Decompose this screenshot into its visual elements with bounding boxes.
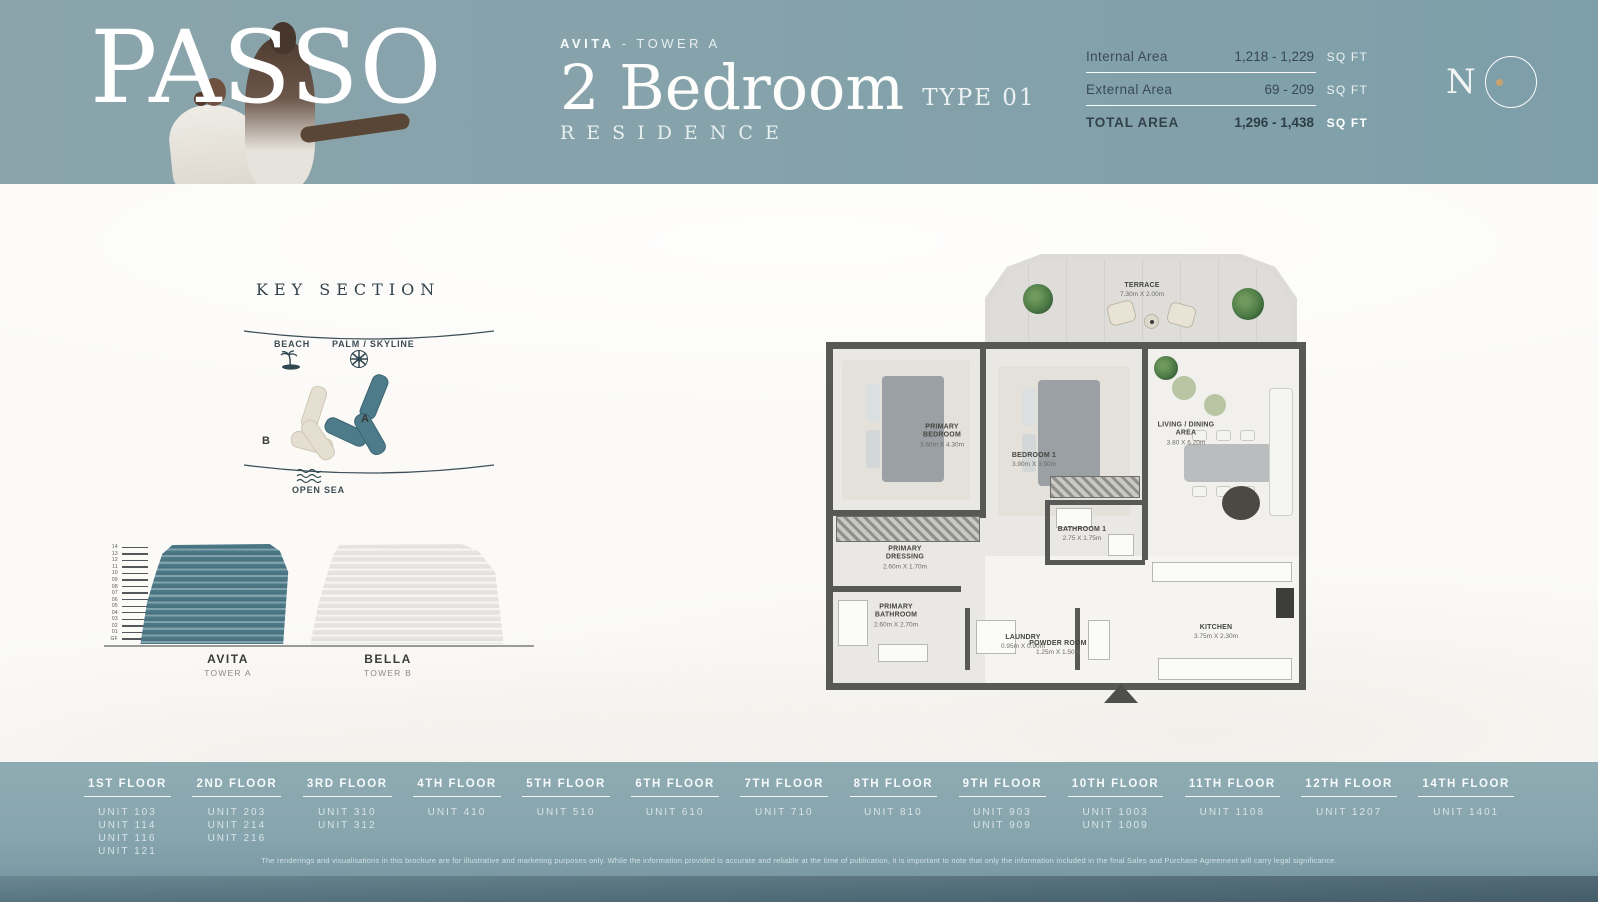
floor-column-14th: 14TH FLOOR UNIT 1401 <box>1418 774 1514 858</box>
external-area-label: External Area <box>1086 82 1214 97</box>
floor-scale-number: 06 <box>104 597 118 603</box>
floor-plan: TERRACE 7.30m X 2.00m <box>820 248 1312 708</box>
unit-item: UNIT 410 <box>413 806 501 819</box>
room-dims: 7.30m X 2.00m <box>1106 291 1178 298</box>
dining-table <box>1184 444 1272 482</box>
kitchen-counter <box>1158 658 1292 680</box>
floor-scale-number: 11 <box>104 564 118 570</box>
floor-scale-number: GF <box>104 636 118 642</box>
room-dims: 1.25m X 1.50m <box>1022 649 1094 656</box>
floor-scale-number: 02 <box>104 623 118 629</box>
floor-scale-tick <box>122 566 148 567</box>
total-area-value: 1,296 - 1,438 <box>1214 115 1316 130</box>
floor-scale-number: 03 <box>104 616 118 622</box>
floor-scale-number: 10 <box>104 570 118 576</box>
floor-scale-tick <box>122 606 148 607</box>
room-name: BEDROOM 1 <box>998 452 1070 460</box>
room-name: POWDER ROOM <box>1022 640 1094 648</box>
floor-scale-number: 05 <box>104 603 118 609</box>
unit-item: UNIT 610 <box>631 806 719 819</box>
tower-b-key-label: B <box>262 435 270 447</box>
floor-scale-number: 07 <box>104 590 118 596</box>
unit-item: UNIT 203 <box>192 806 281 819</box>
tower-a-key-label: A <box>361 413 369 425</box>
unit-item: UNIT 1207 <box>1301 806 1397 819</box>
floor-column-header: 7TH FLOOR <box>740 778 828 797</box>
residence-label: RESIDENCE <box>560 122 1036 144</box>
floor-scale-number: 12 <box>104 557 118 563</box>
project-name: AVITA - TOWER A <box>560 36 1036 51</box>
floor-scale-tick <box>122 579 148 580</box>
developer-logo: N <box>1446 56 1537 108</box>
floor-column-header: 12TH FLOOR <box>1301 778 1397 797</box>
room-name: LIVING / DINING AREA <box>1150 422 1222 439</box>
unit-item: UNIT 310 <box>303 806 392 819</box>
terrace-label: TERRACE 7.30m X 2.00m <box>1106 282 1178 298</box>
floor-column-4th: 4TH FLOOR UNIT 410 <box>413 774 501 858</box>
wall <box>980 342 986 518</box>
unit-item: UNIT 1401 <box>1418 806 1514 819</box>
floor-column-2nd: 2ND FLOOR UNIT 203 UNIT 214 UNIT 216 <box>192 774 281 858</box>
floor-column-header: 5TH FLOOR <box>522 778 610 797</box>
unit-item: UNIT 114 <box>84 819 171 832</box>
terrace-plant-icon <box>1232 288 1264 320</box>
internal-area-label: Internal Area <box>1086 49 1214 64</box>
passo-logo: PASSO <box>90 18 443 118</box>
developer-logo-gold-dot <box>1496 79 1503 86</box>
living-plant-icon <box>1154 356 1178 380</box>
key-section-title: KEY SECTION <box>256 280 440 299</box>
floor-column-12th: 12TH FLOOR UNIT 1207 <box>1301 774 1397 858</box>
floor-column-3rd: 3RD FLOOR UNIT 310 UNIT 312 <box>303 774 392 858</box>
internal-area-value: 1,218 - 1,229 <box>1214 49 1316 64</box>
floor-column-10th: 10TH FLOOR UNIT 1003 UNIT 1009 <box>1068 774 1164 858</box>
living-dining-label: LIVING / DINING AREA 3.80 X 6.20m <box>1150 422 1222 447</box>
floor-column-header: 9TH FLOOR <box>959 778 1047 797</box>
internal-area-unit: SQ FT <box>1316 50 1368 64</box>
floor-column-header: 11TH FLOOR <box>1185 778 1280 797</box>
room-dims: 2.60m X 1.70m <box>869 563 941 570</box>
bathroom1-label: BATHROOM 1 2.75 X 1.75m <box>1046 526 1118 542</box>
floor-scale-tick <box>122 573 148 574</box>
floor-column-header: 6TH FLOOR <box>631 778 719 797</box>
floor-scale-number: 08 <box>104 584 118 590</box>
room-dims: 3.90m X 3.90m <box>998 461 1070 468</box>
terrace-side-table <box>1144 314 1159 329</box>
room-dims: 2.75 X 1.75m <box>1046 535 1118 542</box>
unit-type-title: 2 Bedroom <box>560 55 904 120</box>
unit-item: UNIT 510 <box>522 806 610 819</box>
room-name: PRIMARY BATHROOM <box>860 604 932 621</box>
bedroom1-label: BEDROOM 1 3.90m X 3.90m <box>998 452 1070 468</box>
palm-top-view-icon <box>348 348 370 370</box>
project-name-rest: - TOWER A <box>622 36 721 51</box>
floor-column-header: 2ND FLOOR <box>192 778 281 797</box>
lower-arc-line <box>243 462 495 482</box>
unit-item: UNIT 1108 <box>1185 806 1280 819</box>
brochure-page: PASSO AVITA - TOWER A 2 Bedroom TYPE 01 … <box>0 0 1598 902</box>
project-name-bold: AVITA <box>560 36 615 51</box>
floors-columns: 1ST FLOOR UNIT 103 UNIT 114 UNIT 116 UNI… <box>84 774 1514 858</box>
unit-item: UNIT 1003 <box>1068 806 1164 819</box>
unit-item: UNIT 116 <box>84 832 171 845</box>
kitchen-label: KITCHEN 3.75m X 2.30m <box>1180 624 1252 640</box>
developer-logo-letter: N <box>1446 65 1476 99</box>
total-area-label: TOTAL AREA <box>1086 115 1214 130</box>
floor-scale-tick <box>122 553 148 554</box>
room-name: PRIMARY BEDROOM <box>906 424 978 441</box>
floor-column-header: 1ST FLOOR <box>84 778 171 797</box>
type-label: TYPE 01 <box>922 85 1035 120</box>
kitchen-appliance <box>1276 588 1294 618</box>
primary-bath-vanity <box>878 644 928 662</box>
avita-tower-caption: AVITA TOWER A <box>168 652 288 678</box>
primary-dressing-label: PRIMARY DRESSING 2.60m X 1.70m <box>869 546 941 571</box>
wall <box>1045 560 1145 565</box>
dining-chair <box>1192 486 1207 497</box>
pouf <box>1204 394 1226 416</box>
wall <box>1142 342 1148 560</box>
sofa <box>1269 388 1293 516</box>
unit-item: UNIT 810 <box>850 806 938 819</box>
floor-column-11th: 11TH FLOOR UNIT 1108 <box>1185 774 1280 858</box>
room-name: BATHROOM 1 <box>1046 526 1118 534</box>
total-area-row: TOTAL AREA 1,296 - 1,438 SQ FT <box>1086 106 1368 139</box>
room-dims: 3.75m X 2.30m <box>1180 633 1252 640</box>
floor-column-header: 10TH FLOOR <box>1068 778 1164 797</box>
floor-scale-tick <box>122 619 148 620</box>
wall <box>833 586 961 592</box>
unit-item: UNIT 214 <box>192 819 281 832</box>
coffee-table <box>1222 486 1260 520</box>
pouf <box>1172 376 1196 400</box>
floor-scale-number: 04 <box>104 610 118 616</box>
external-area-row: External Area 69 - 209 SQ FT <box>1086 73 1368 106</box>
kitchen-island <box>1152 562 1292 582</box>
floor-scale-tick <box>122 560 148 561</box>
header-band: PASSO AVITA - TOWER A 2 Bedroom TYPE 01 … <box>0 0 1598 184</box>
floor-column-header: 8TH FLOOR <box>850 778 938 797</box>
external-area-value: 69 - 209 <box>1214 82 1316 97</box>
floor-scale-number: 13 <box>104 551 118 557</box>
floor-column-header: 3RD FLOOR <box>303 778 392 797</box>
entrance-arrow-icon <box>1104 684 1138 703</box>
floor-scale: 14 13 12 11 10 09 08 07 06 05 04 03 02 0… <box>104 544 148 642</box>
terrace-plant-icon <box>1023 284 1053 314</box>
bella-tower-elevation <box>302 544 512 644</box>
bedroom1-wardrobe <box>1050 476 1140 498</box>
floor-column-7th: 7TH FLOOR UNIT 710 <box>740 774 828 858</box>
floor-scale-number: 14 <box>104 544 118 550</box>
open-sea-label: OPEN SEA <box>292 485 345 495</box>
floor-column-1st: 1ST FLOOR UNIT 103 UNIT 114 UNIT 116 UNI… <box>84 774 171 858</box>
floor-column-8th: 8TH FLOOR UNIT 810 <box>850 774 938 858</box>
beach-palm-island-icon <box>278 350 304 370</box>
unit-item: UNIT 710 <box>740 806 828 819</box>
dressing-wardrobe <box>836 516 980 542</box>
floor-scale-number: 09 <box>104 577 118 583</box>
floors-footer: 1ST FLOOR UNIT 103 UNIT 114 UNIT 116 UNI… <box>0 762 1598 902</box>
developer-logo-circle-icon <box>1485 56 1537 108</box>
floor-scale-tick <box>122 547 148 548</box>
floor-column-header: 14TH FLOOR <box>1418 778 1514 797</box>
floor-column-header: 4TH FLOOR <box>413 778 501 797</box>
room-dims: 3.60m X 4.30m <box>906 441 978 448</box>
title-block: AVITA - TOWER A 2 Bedroom TYPE 01 RESIDE… <box>560 36 1036 144</box>
wall <box>965 608 970 670</box>
bella-tower-caption: BELLA TOWER B <box>328 652 448 678</box>
primary-bathroom-label: PRIMARY BATHROOM 2.60m X 2.70m <box>860 604 932 629</box>
floor-column-6th: 6TH FLOOR UNIT 610 <box>631 774 719 858</box>
avita-sub: TOWER A <box>168 668 288 678</box>
room-dims: 3.80 X 6.20m <box>1150 439 1222 446</box>
unit-item: UNIT 903 <box>959 806 1047 819</box>
room-name: TERRACE <box>1106 282 1178 290</box>
ground-line <box>104 645 534 647</box>
external-area-unit: SQ FT <box>1316 83 1368 97</box>
room-dims: 2.60m X 2.70m <box>860 621 932 628</box>
unit-item: UNIT 103 <box>84 806 171 819</box>
floor-scale-tick <box>122 612 148 613</box>
primary-bedroom-label: PRIMARY BEDROOM 3.60m X 4.30m <box>906 424 978 449</box>
floor-scale-number: 01 <box>104 629 118 635</box>
floor-scale-tick <box>122 592 148 593</box>
unit-item: UNIT 216 <box>192 832 281 845</box>
floor-column-9th: 9TH FLOOR UNIT 903 UNIT 909 <box>959 774 1047 858</box>
floor-scale-tick <box>122 599 148 600</box>
bella-sub: TOWER B <box>328 668 448 678</box>
bella-name: BELLA <box>328 652 448 666</box>
avita-name: AVITA <box>168 652 288 666</box>
powder-room-label: POWDER ROOM 1.25m X 1.50m <box>1022 640 1094 656</box>
unit-item: UNIT 1009 <box>1068 819 1164 832</box>
dining-chair <box>1240 430 1255 441</box>
unit-item: UNIT 312 <box>303 819 392 832</box>
unit-item: UNIT 909 <box>959 819 1047 832</box>
floor-scale-tick <box>122 586 148 587</box>
room-name: KITCHEN <box>1180 624 1252 632</box>
total-area-unit: SQ FT <box>1316 116 1368 130</box>
bedroom1-bed <box>1038 380 1100 486</box>
upper-arc-line <box>243 328 495 348</box>
internal-area-row: Internal Area 1,218 - 1,229 SQ FT <box>1086 40 1368 73</box>
floor-column-5th: 5TH FLOOR UNIT 510 <box>522 774 610 858</box>
disclaimer-text: The renderings and visualisations in thi… <box>0 856 1598 865</box>
area-table: Internal Area 1,218 - 1,229 SQ FT Extern… <box>1086 40 1368 139</box>
open-sea-waves-icon <box>296 468 324 484</box>
wall <box>1045 500 1145 505</box>
room-name: PRIMARY DRESSING <box>869 546 941 563</box>
